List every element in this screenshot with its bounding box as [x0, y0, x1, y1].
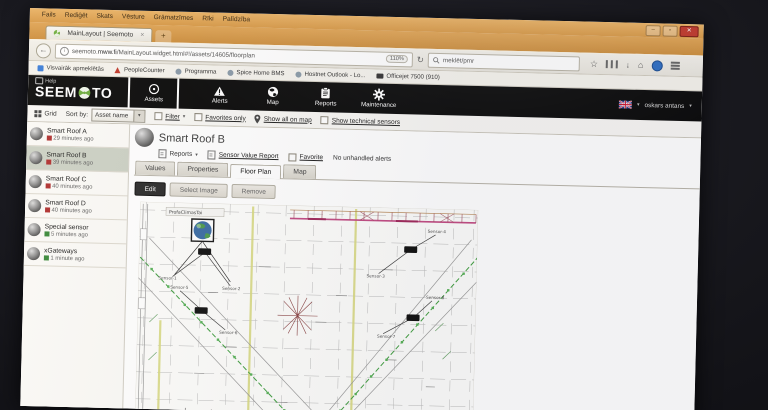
tab-properties[interactable]: Properties	[177, 162, 228, 177]
bookmark-hostnet-outlook[interactable]: Hostnet Outlook - Lo...	[295, 71, 365, 80]
grid-icon	[34, 110, 41, 117]
tab-map[interactable]: Map	[283, 164, 317, 179]
nav-map[interactable]: Map	[246, 85, 299, 106]
header-right: ▾ oskars antans ▾	[619, 100, 702, 110]
sensor-label: Sensor-4	[428, 229, 447, 234]
assets-icon	[148, 83, 160, 95]
status-square	[45, 208, 50, 213]
favorites-only-control[interactable]: Favorites only	[194, 113, 246, 122]
window-controls: – ▫ ✕	[645, 25, 698, 37]
new-tab-button[interactable]: +	[155, 30, 171, 42]
gateway-tooltip: ProfaClimasTai	[166, 207, 224, 216]
reports-icon	[320, 87, 331, 99]
logo-pinwheel-icon	[78, 86, 91, 99]
floorplan-svg[interactable]: ProfaClimasTai Sensor-1 Sensor-2	[135, 202, 478, 410]
sensor-label: Sensor-3	[366, 273, 385, 278]
map-globe-icon	[267, 86, 279, 98]
downloads-icon[interactable]: ↓	[626, 60, 630, 69]
select-image-button[interactable]: Select Image	[170, 182, 228, 197]
alerts-icon	[213, 85, 226, 96]
asset-globe-icon	[30, 127, 43, 140]
asset-globe-icon	[27, 247, 40, 260]
logo-box: Help SEEM TO	[28, 75, 129, 107]
svg-text:ProfaClimasTai: ProfaClimasTai	[169, 209, 202, 216]
floorplan-container: ProfaClimasTai Sensor-1 Sensor-2	[135, 202, 699, 410]
asset-item-smart-roof-a[interactable]: Smart Roof A 29 minutes ago	[27, 122, 130, 148]
nav-alerts[interactable]: Alerts	[193, 85, 246, 105]
reports-dropdown[interactable]: Reports▾	[158, 149, 197, 159]
language-caret-icon[interactable]: ▾	[637, 102, 640, 108]
show-technical-control[interactable]: Show technical sensors	[321, 116, 400, 126]
app-body: Smart Roof A 29 minutes ago Smart Roof B…	[20, 122, 701, 410]
asset-globe-icon	[135, 128, 154, 147]
show-all-on-map-link[interactable]: Show all on map	[255, 114, 312, 124]
bookmark-spice-home-bms[interactable]: Spice Home BMS	[227, 69, 284, 77]
asset-item-smart-roof-d[interactable]: Smart Roof D 40 minutes ago	[25, 194, 128, 220]
asset-globe-icon	[29, 151, 42, 164]
menu-help[interactable]: Palīdzība	[223, 16, 251, 24]
document-icon	[208, 150, 216, 159]
filter-checkbox[interactable]	[154, 112, 162, 120]
tab-values[interactable]: Values	[135, 161, 176, 176]
sensor-label: Sensor-5	[170, 285, 189, 290]
bookmark-officejet[interactable]: Officejet 7500 (910)	[376, 72, 440, 81]
bookmark-peoplecounter[interactable]: PeopleCounter	[115, 66, 165, 74]
globe-icon	[176, 68, 182, 74]
browser-window: Fails Rediģēt Skats Vēsture Grāmatzīmes …	[20, 8, 704, 410]
page-title: Smart Roof B	[159, 132, 225, 146]
tab-floor-plan[interactable]: Floor Plan	[230, 164, 281, 179]
bookmark-most-visited[interactable]: Visvairāk apmeklētās	[37, 64, 104, 73]
bookmark-programma[interactable]: Programma	[176, 68, 217, 76]
sensor-label: Sensor-6	[219, 330, 238, 335]
asset-item-smart-roof-b[interactable]: Smart Roof B 39 minutes ago	[26, 146, 129, 172]
library-icon[interactable]	[606, 60, 618, 68]
status-square	[44, 232, 49, 237]
map-pin-icon	[255, 114, 261, 123]
toolbar-icons: ☆ ↓ ⌂	[590, 58, 680, 71]
tab-title: MainLayout | Seemoto	[67, 30, 133, 39]
site-info-icon[interactable]: i	[60, 46, 69, 55]
status-square	[44, 256, 49, 261]
nav-reports[interactable]: Reports	[299, 87, 352, 108]
unhandled-alerts-note: No unhandled alerts	[333, 154, 391, 162]
asset-detail: Smart Roof B Reports▾ Sensor Value Repor…	[123, 124, 701, 410]
remove-button[interactable]: Remove	[232, 184, 277, 199]
browser-tab[interactable]: MainLayout | Seemoto ×	[45, 25, 152, 42]
printer-icon	[376, 73, 383, 78]
asset-item-special-sensor[interactable]: Special sensor 5 minutes ago	[24, 218, 127, 244]
edit-button[interactable]: Edit	[134, 182, 166, 197]
minimize-button[interactable]: –	[645, 25, 660, 36]
status-square	[47, 136, 52, 141]
search-icon	[433, 56, 440, 63]
menu-bookmarks[interactable]: Grāmatzīmes	[154, 14, 194, 22]
favorite-control[interactable]: Favorite	[288, 153, 323, 162]
globe-icon	[295, 71, 301, 77]
seemoto-logo[interactable]: SEEM TO	[35, 84, 113, 101]
asset-item-smart-roof-c[interactable]: Smart Roof C 40 minutes ago	[25, 170, 128, 196]
back-button[interactable]: ←	[36, 43, 51, 58]
bookmark-star-icon[interactable]: ☆	[590, 58, 598, 69]
menu-file[interactable]: Fails	[42, 11, 56, 18]
zoom-indicator[interactable]: 110%	[386, 55, 408, 64]
user-caret-icon[interactable]: ▾	[689, 103, 692, 109]
menu-edit[interactable]: Rediģēt	[65, 12, 88, 20]
search-value: meklēt/pmr	[443, 57, 474, 65]
filter-control[interactable]: Filter▾	[154, 112, 185, 121]
asset-globe-icon	[28, 199, 41, 212]
asset-globe-icon	[29, 175, 42, 188]
sensor-label: Sensor-1	[158, 275, 177, 280]
menu-history[interactable]: Vēsture	[122, 13, 145, 21]
search-input[interactable]: meklēt/pmr	[428, 52, 580, 71]
maximize-button[interactable]: ▫	[662, 25, 677, 36]
user-menu[interactable]: oskars antans	[644, 102, 684, 110]
folder-icon	[37, 65, 43, 71]
menu-tools[interactable]: Rīki	[202, 15, 214, 22]
favorite-checkbox[interactable]	[288, 153, 296, 161]
sensor-label: Sensor-8	[426, 295, 445, 300]
warning-icon	[115, 67, 121, 73]
sort-by-label: Sort by:	[66, 110, 89, 118]
home-icon[interactable]: ⌂	[638, 60, 644, 70]
nav-maintenance[interactable]: Maintenance	[352, 88, 405, 109]
sensor-label: Sensor-2	[222, 286, 241, 291]
extension-icon[interactable]	[651, 60, 662, 71]
status-square	[46, 160, 51, 165]
favorites-checkbox[interactable]	[194, 113, 202, 121]
grid-toggle[interactable]: Grid	[34, 110, 56, 118]
sensor-value-report-link[interactable]: Sensor Value Report	[208, 150, 279, 161]
asset-globe-icon	[27, 223, 40, 236]
technical-checkbox[interactable]	[321, 116, 329, 124]
language-flag-icon[interactable]	[619, 100, 632, 108]
asset-sidebar: Smart Roof A 29 minutes ago Smart Roof B…	[20, 122, 130, 410]
reload-icon[interactable]: ↻	[417, 54, 424, 65]
gear-icon	[373, 88, 385, 100]
chevron-down-icon: ▾	[133, 110, 144, 121]
sensor-label: Sensor-7	[377, 334, 396, 339]
close-button[interactable]: ✕	[679, 26, 698, 37]
status-square	[46, 184, 51, 189]
sort-by-group: Sort by: Asset name▾	[66, 107, 146, 122]
url-text: seemoto.mww.fi/MainLayout.widget.html#!/…	[72, 48, 383, 63]
reports-caret-icon: ▾	[195, 152, 198, 158]
tab-close-icon[interactable]: ×	[140, 32, 144, 39]
nav-assets[interactable]: Assets	[130, 77, 178, 108]
filter-caret-icon: ▾	[183, 114, 186, 120]
menu-view[interactable]: Skats	[96, 13, 113, 20]
asset-item-xgateways[interactable]: xGateways 1 minute ago	[24, 242, 127, 268]
document-icon	[158, 149, 166, 158]
monitor-photo: Fails Rediģēt Skats Vēsture Grāmatzīmes …	[0, 0, 768, 410]
sort-by-select[interactable]: Asset name▾	[91, 108, 146, 122]
seemoto-favicon	[53, 30, 60, 37]
menu-icon[interactable]	[670, 62, 679, 70]
globe-icon	[227, 69, 233, 75]
